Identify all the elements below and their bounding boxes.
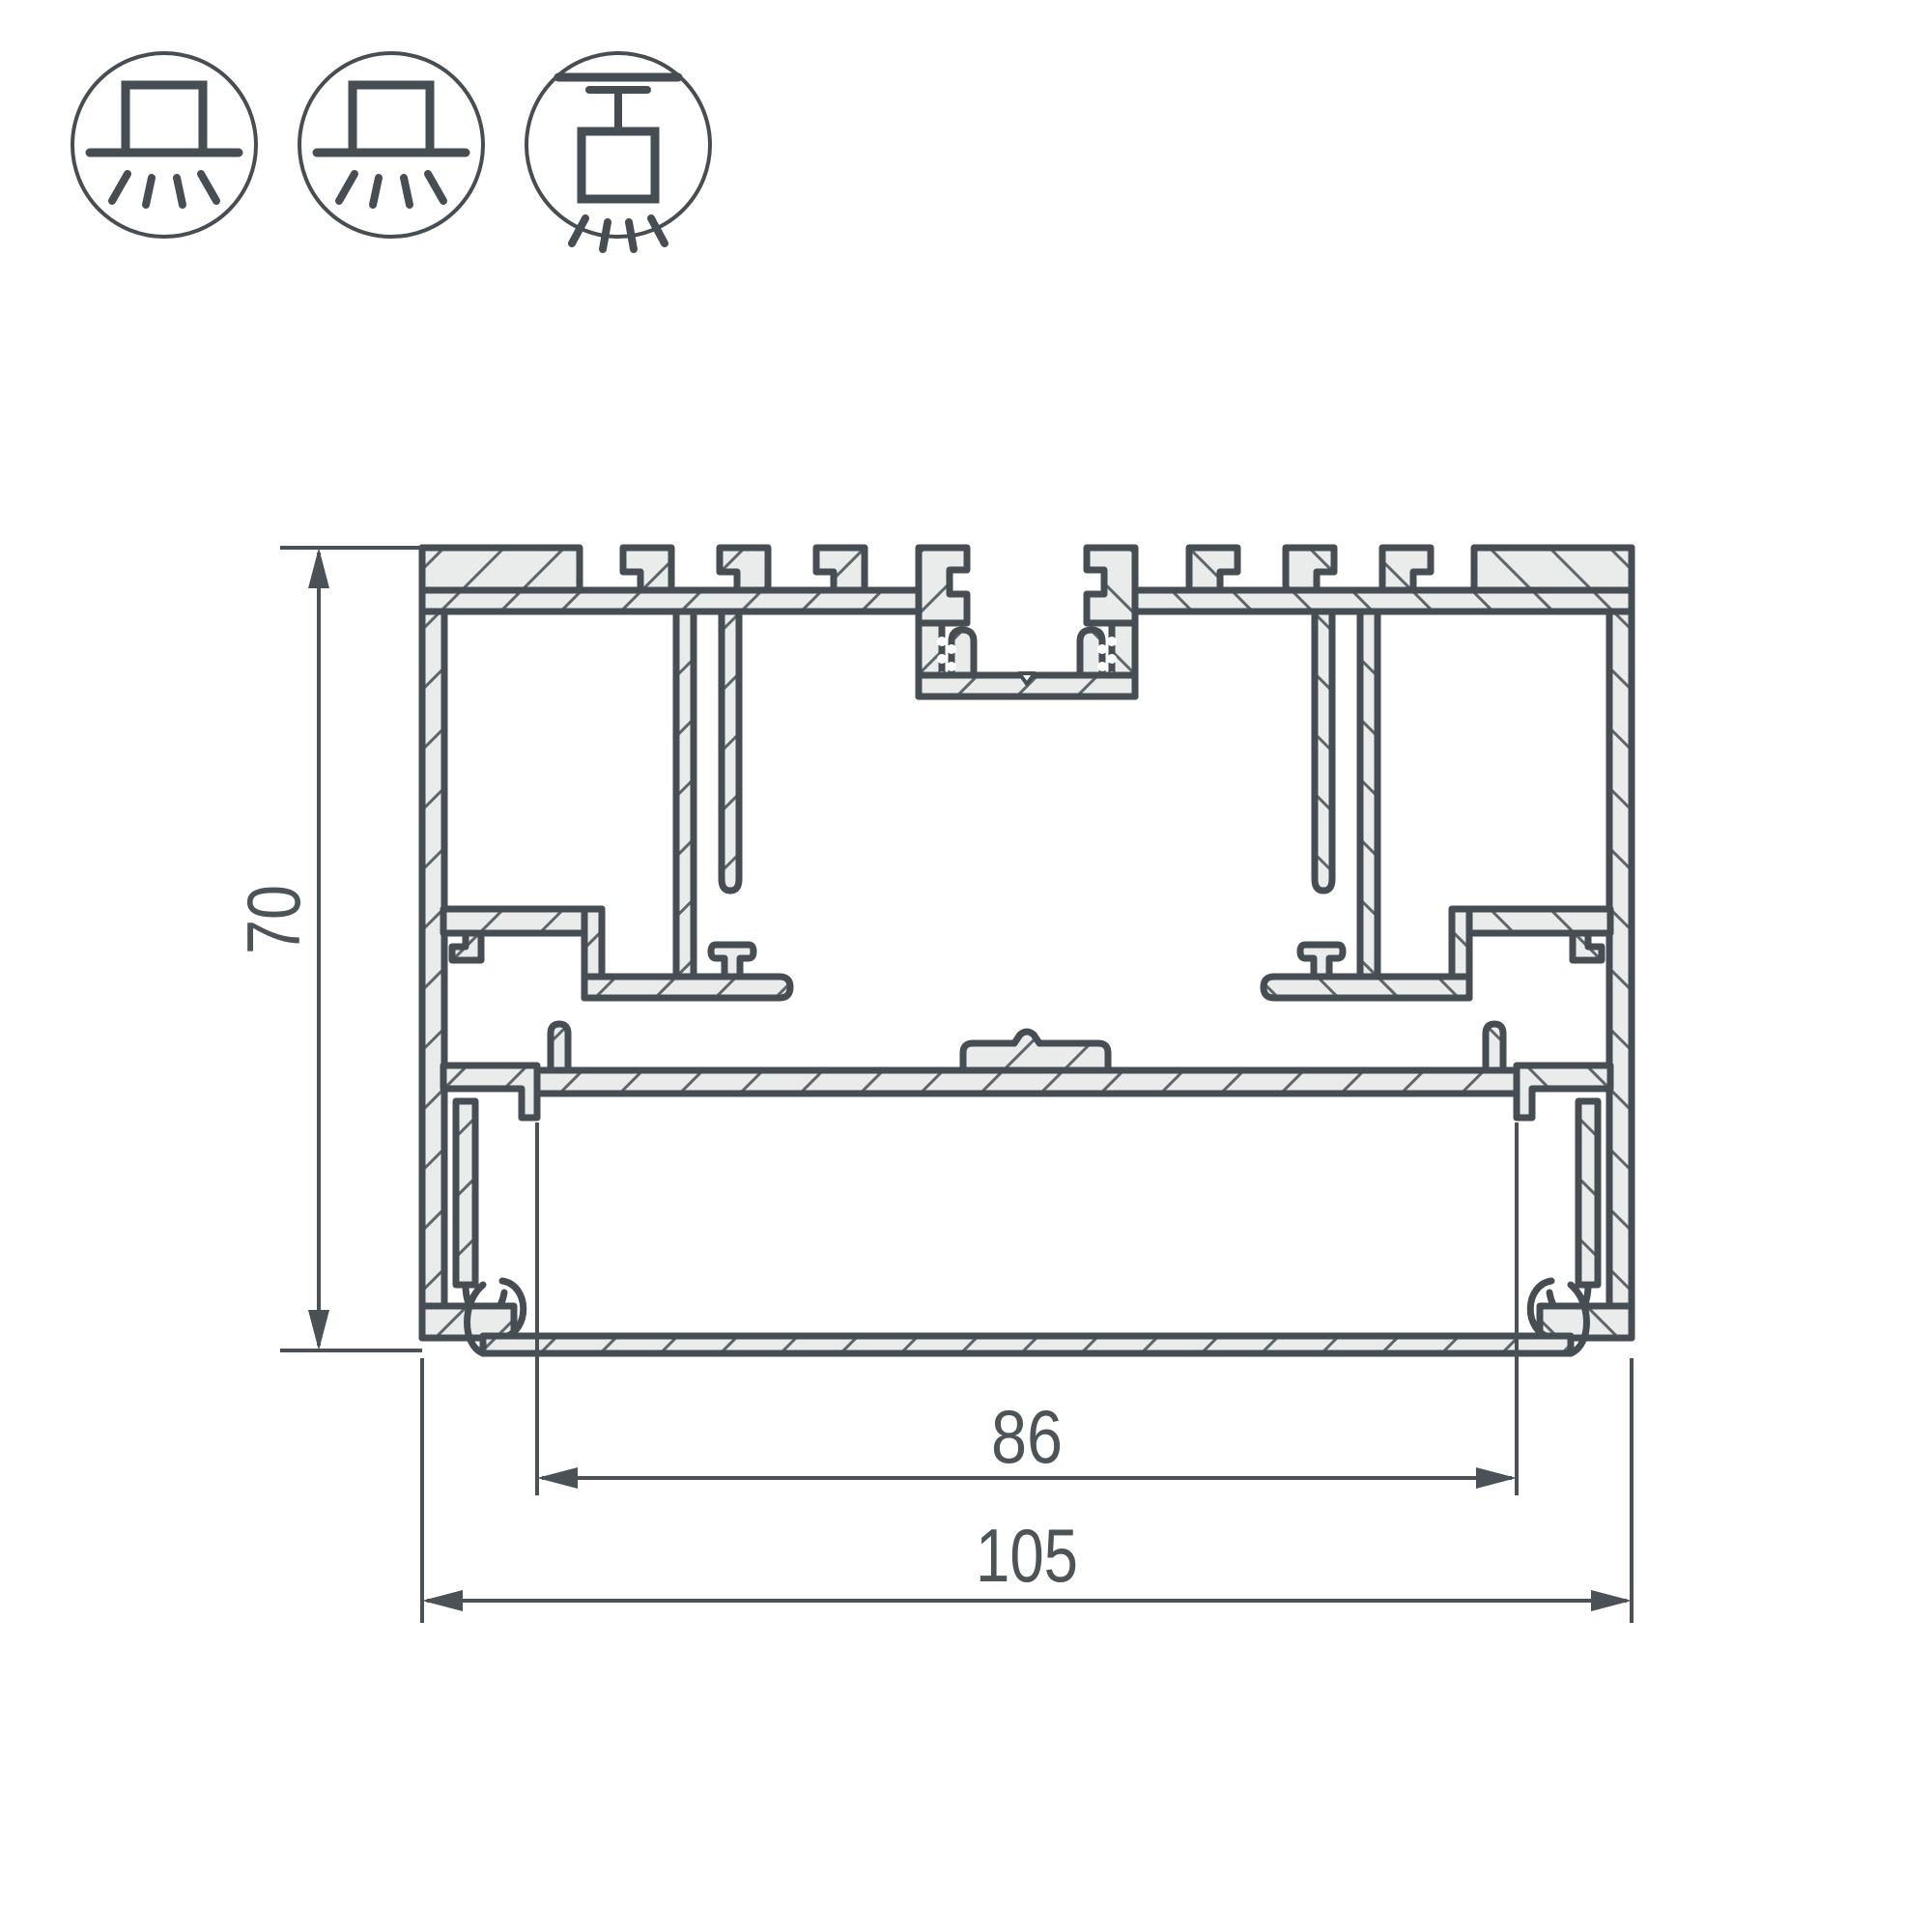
dimension-70-label: 70 (231, 885, 316, 954)
profile-cross-section (422, 548, 1632, 1353)
light-rays (112, 174, 216, 205)
led-platform (537, 1070, 1517, 1094)
arrowhead-up (308, 548, 329, 588)
diffuser-plate (483, 1336, 1571, 1353)
arrowhead-left (537, 1467, 578, 1489)
arrowhead-down (308, 1310, 329, 1350)
arrowhead-right (1591, 1590, 1632, 1611)
drawing-canvas: 70 86 105 (0, 0, 1932, 1932)
profile-box (582, 131, 655, 199)
dimension-105-label: 105 (976, 1513, 1078, 1598)
surface-mount-icon (299, 53, 483, 237)
profile-box (353, 85, 430, 153)
mounting-icons (72, 53, 710, 249)
light-rays (572, 218, 665, 249)
dimension-70: 70 (231, 548, 422, 1350)
platform-center-bump (963, 1032, 1108, 1070)
dimension-86: 86 (537, 1122, 1517, 1495)
profile-drawing: 70 86 105 (0, 0, 1932, 1932)
arrowhead-left (422, 1590, 463, 1611)
arrowhead-right (1476, 1467, 1517, 1489)
surface-mount-icon (72, 53, 256, 237)
profile-box (126, 85, 203, 153)
dimension-86-label: 86 (991, 1394, 1063, 1479)
light-rays (339, 174, 443, 205)
pendant-mount-icon (526, 53, 710, 249)
